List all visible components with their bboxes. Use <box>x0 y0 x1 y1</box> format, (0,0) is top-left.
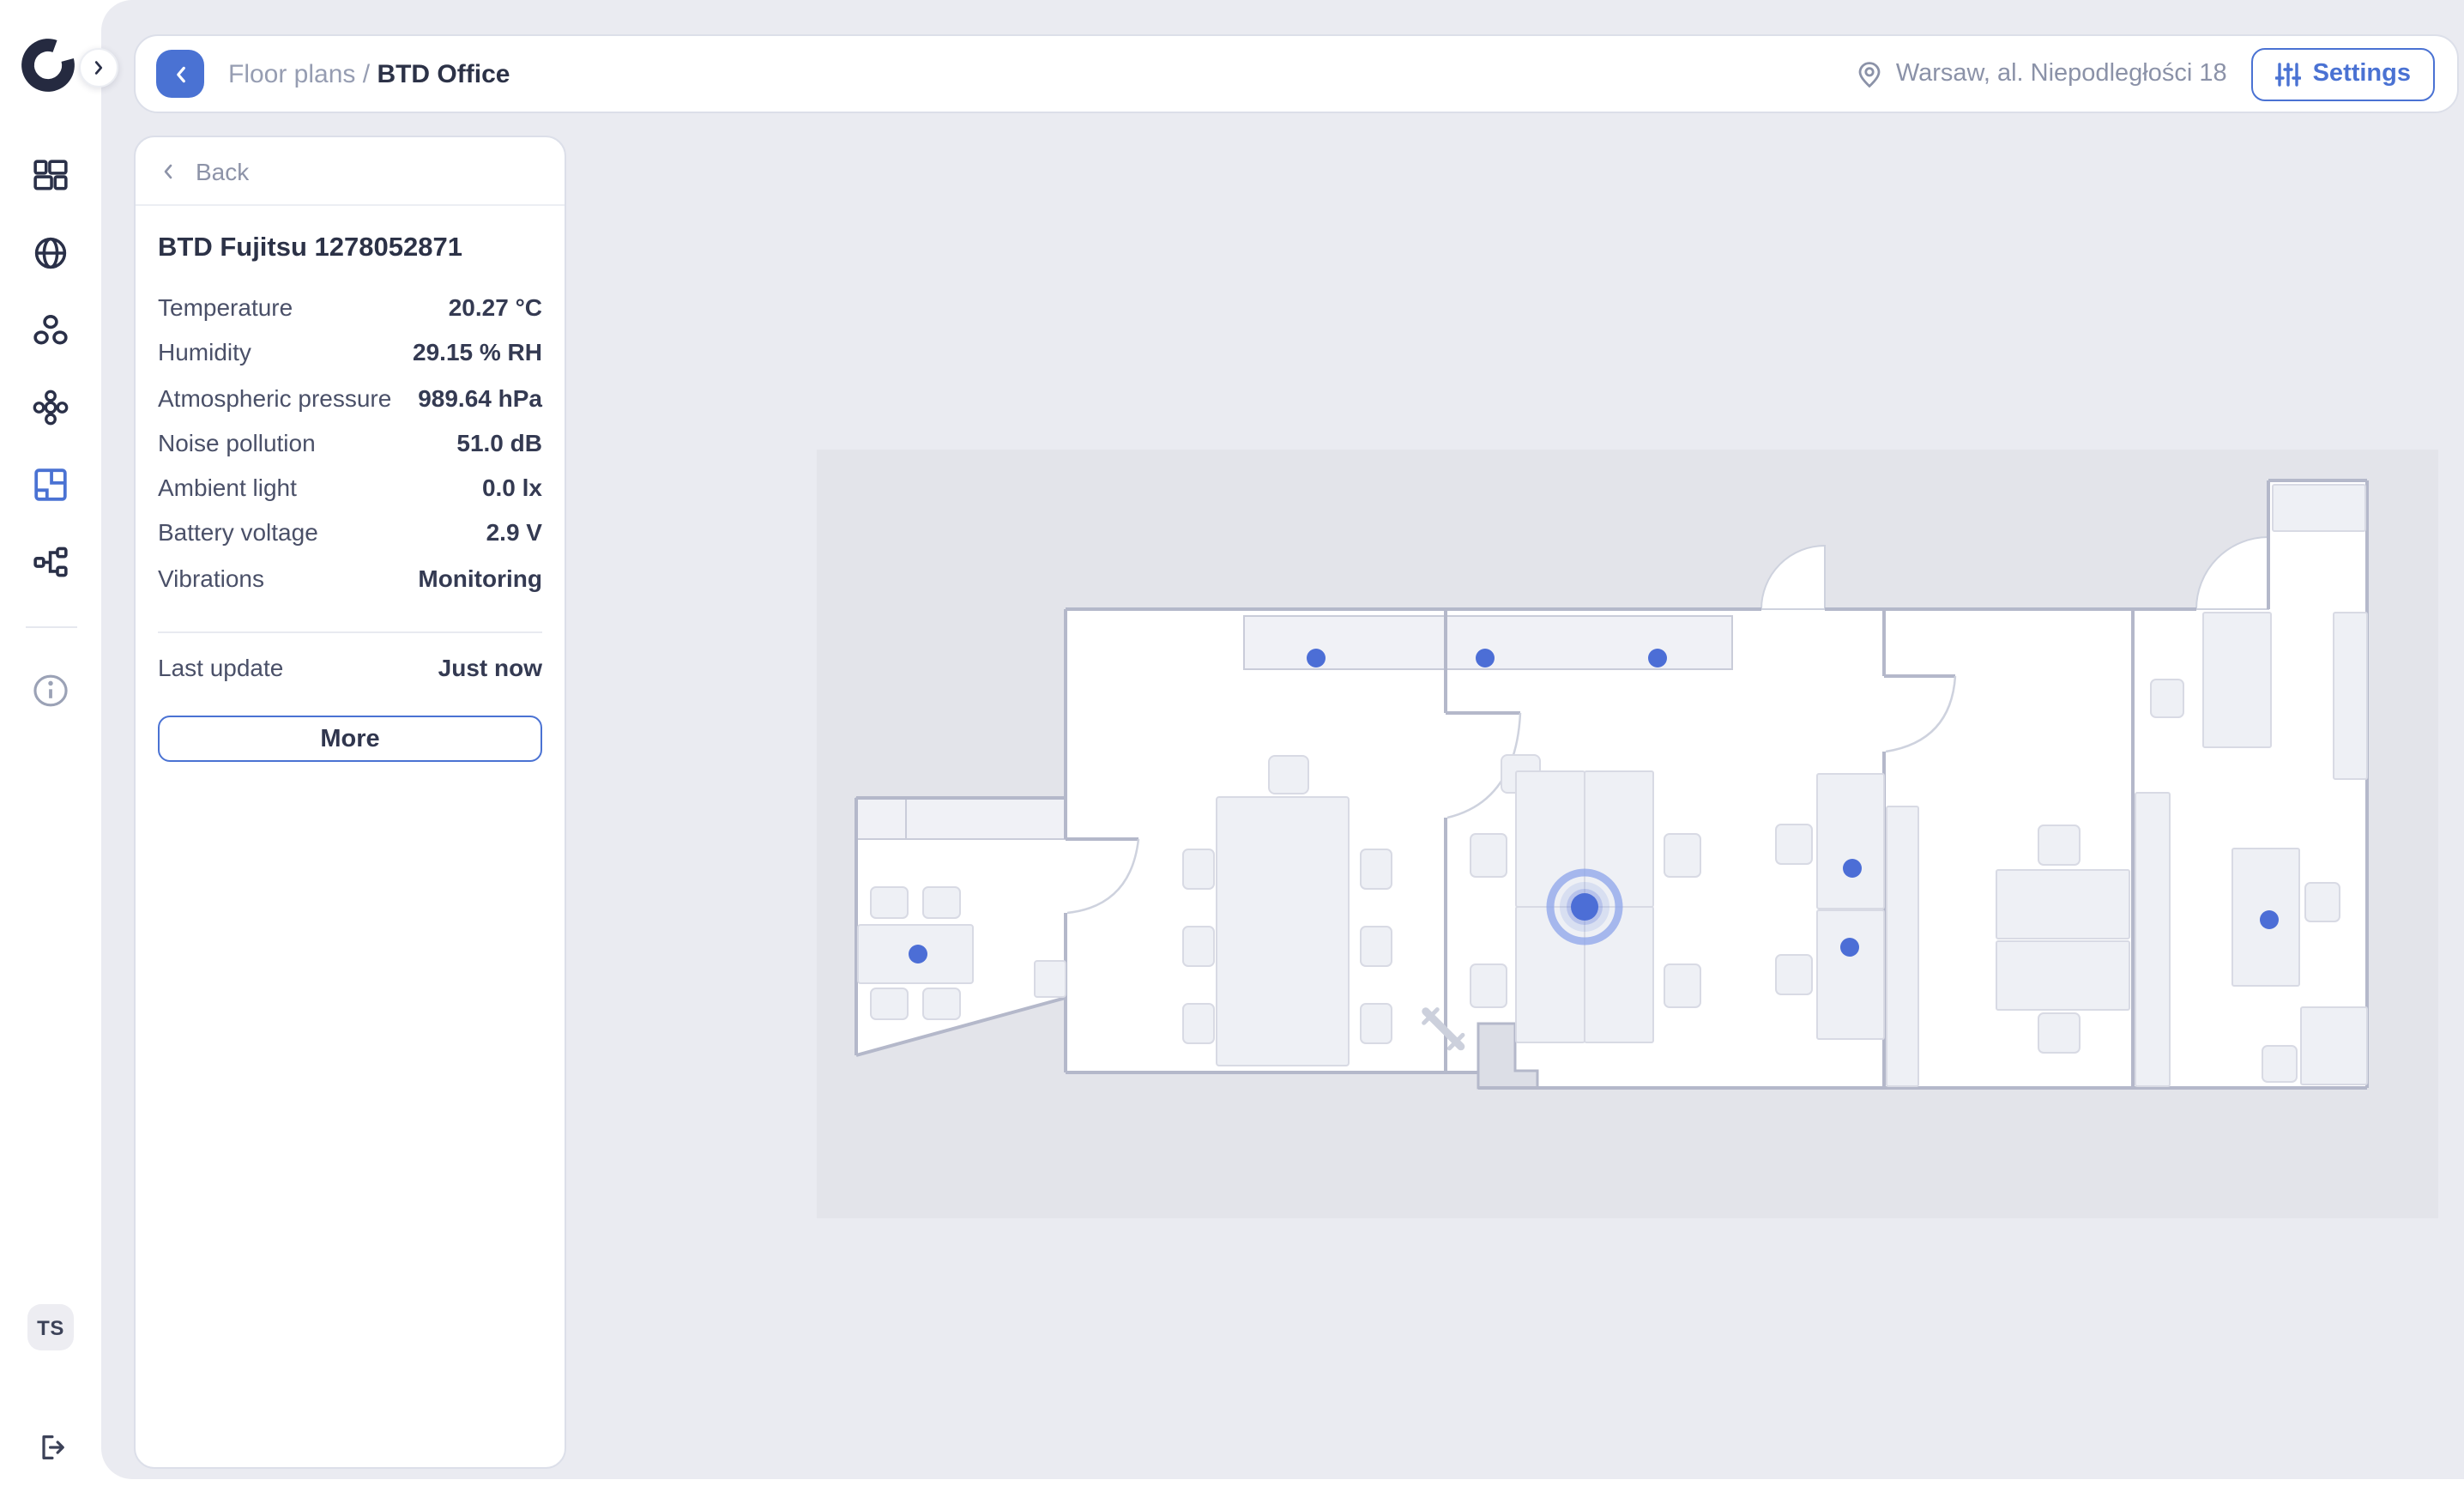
device-panel: Back BTD Fujitsu 1278052871 Temperature2… <box>134 136 566 1469</box>
app-root: TS Floor plans / BTD Office Warsaw, al. … <box>0 0 2464 1486</box>
annex-sensor[interactable] <box>909 945 927 963</box>
reading-row: Battery voltage2.9 V <box>158 519 542 565</box>
breadcrumb-section[interactable]: Floor plans <box>228 59 355 88</box>
reading-value: 0.0 lx <box>482 474 542 501</box>
reading-row: Temperature20.27 °C <box>158 293 542 339</box>
reading-row: Noise pollution51.0 dB <box>158 429 542 474</box>
cabinet-sensor-1[interactable] <box>1843 859 1862 878</box>
logout-icon[interactable] <box>34 1431 67 1464</box>
readings-list: Temperature20.27 °CHumidity29.15 % RHAtm… <box>158 293 542 609</box>
location-label: Warsaw, al. Niepodległości 18 <box>1855 59 2227 88</box>
selected-sensor[interactable] <box>1550 873 1619 941</box>
band-sensor-1[interactable] <box>1307 649 1326 667</box>
reading-row: Humidity29.15 % RH <box>158 339 542 384</box>
header-bar: Floor plans / BTD Office Warsaw, al. Nie… <box>134 34 2459 113</box>
reading-value: 51.0 dB <box>456 429 542 456</box>
more-button[interactable]: More <box>158 716 542 763</box>
settings-button[interactable]: Settings <box>2251 47 2435 100</box>
breadcrumb: Floor plans / BTD Office <box>228 59 510 88</box>
chevron-right-icon <box>89 58 108 77</box>
reading-row: Ambient light0.0 lx <box>158 474 542 519</box>
sidebar-item-floorplans[interactable] <box>33 467 69 503</box>
reading-label: Battery voltage <box>158 519 318 547</box>
reading-value: 29.15 % RH <box>413 339 542 366</box>
chevron-left-icon <box>158 160 178 181</box>
reading-value: 989.64 hPa <box>418 384 542 411</box>
reading-label: Ambient light <box>158 474 297 501</box>
sidebar-item-hierarchy[interactable] <box>33 544 69 580</box>
sidebar-item-nodes[interactable] <box>33 312 69 348</box>
reading-value: 20.27 °C <box>449 293 542 321</box>
sidebar-expand-button[interactable] <box>79 48 118 88</box>
reading-value: Monitoring <box>418 565 542 592</box>
chevron-left-icon <box>169 63 191 85</box>
sidebar-item-cluster[interactable] <box>33 390 69 426</box>
right-desk-sensor[interactable] <box>2260 910 2279 929</box>
panel-back-link[interactable]: Back <box>136 137 565 206</box>
sidebar: TS <box>0 0 101 1486</box>
reading-label: Noise pollution <box>158 429 316 456</box>
sidebar-divider <box>25 626 76 628</box>
reading-label: Humidity <box>158 339 251 366</box>
sidebar-item-info[interactable] <box>33 673 69 709</box>
device-title: BTD Fujitsu 1278052871 <box>158 233 542 264</box>
content-area: Floor plans / BTD Office Warsaw, al. Nie… <box>101 0 2464 1479</box>
reading-row: Atmospheric pressure989.64 hPa <box>158 384 542 429</box>
band-sensor-3[interactable] <box>1648 649 1667 667</box>
sliders-icon <box>2275 61 2301 87</box>
sidebar-item-dashboard[interactable] <box>33 158 69 194</box>
sidebar-item-globe[interactable] <box>33 235 69 271</box>
header-back-button[interactable] <box>156 50 204 98</box>
user-avatar[interactable]: TS <box>27 1304 74 1350</box>
reading-value: 2.9 V <box>486 519 542 547</box>
band-sensor-2[interactable] <box>1476 649 1495 667</box>
reading-label: Vibrations <box>158 565 264 592</box>
divider <box>158 631 542 633</box>
cabinet-sensor-2[interactable] <box>1840 938 1859 957</box>
breadcrumb-current: BTD Office <box>377 59 510 88</box>
floorplan-canvas[interactable] <box>817 450 2438 1218</box>
reading-row: VibrationsMonitoring <box>158 565 542 610</box>
app-logo-icon <box>21 38 75 93</box>
last-update-row: Last update Just now <box>158 654 542 699</box>
location-pin-icon <box>1855 59 1884 88</box>
floorplan-svg <box>817 450 2438 1218</box>
reading-label: Atmospheric pressure <box>158 384 391 411</box>
reading-label: Temperature <box>158 293 293 321</box>
